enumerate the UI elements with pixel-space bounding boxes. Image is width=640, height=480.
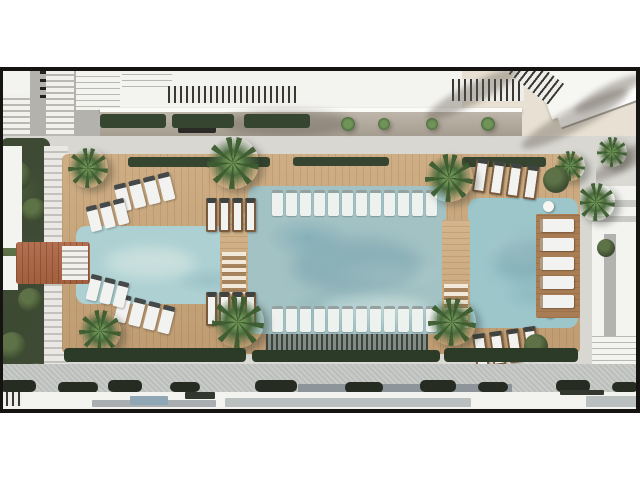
bush-deck-topright bbox=[543, 167, 569, 193]
bottom-roof-gray-3 bbox=[586, 396, 640, 407]
lounger-cabana bbox=[232, 198, 243, 232]
aerial-render-image: Top-down architectural rendering of a re… bbox=[0, 0, 640, 480]
lounger-water bbox=[286, 306, 297, 332]
vent-dots-column bbox=[40, 71, 46, 103]
lounger-cabana bbox=[245, 198, 256, 232]
lounger-water bbox=[328, 190, 339, 216]
lounger-water bbox=[384, 190, 395, 216]
lounger-flat bbox=[540, 238, 574, 251]
lounger-water bbox=[356, 306, 367, 332]
roof-block-lines bbox=[76, 70, 120, 110]
bottom-roof-blue bbox=[130, 396, 168, 405]
lounger-water bbox=[398, 306, 409, 332]
roof-vent-slats-1 bbox=[168, 86, 296, 103]
water-blob-1 bbox=[104, 246, 194, 280]
lounger-water bbox=[370, 190, 381, 216]
lounger-cabana bbox=[506, 162, 524, 197]
lounger-flat bbox=[540, 276, 574, 289]
stairs-topleft bbox=[46, 70, 74, 140]
palm-right-1 bbox=[597, 137, 627, 167]
deck-hedge-2 bbox=[293, 157, 389, 166]
lounger-water bbox=[384, 306, 395, 332]
cabanas-topleft bbox=[206, 198, 256, 232]
palm-topright bbox=[425, 154, 473, 202]
bottom-stairs bbox=[0, 392, 22, 406]
pool-table-1 bbox=[543, 201, 554, 212]
lounger-water bbox=[328, 306, 339, 332]
bottom-roof-gray-2 bbox=[225, 398, 471, 407]
lounger-water bbox=[272, 190, 283, 216]
lounger-water bbox=[398, 190, 409, 216]
palm-bottomleft bbox=[79, 310, 121, 352]
hedge-bottom-2 bbox=[252, 350, 440, 362]
lounger-water bbox=[314, 306, 325, 332]
street-bush-5 bbox=[255, 380, 297, 392]
lounger-flat bbox=[540, 295, 574, 308]
lounger-water bbox=[412, 306, 423, 332]
bush-right bbox=[597, 239, 615, 257]
palm-right-2 bbox=[577, 183, 615, 221]
lounger-water bbox=[342, 306, 353, 332]
walkway-tree-2 bbox=[378, 118, 390, 130]
pier-left-steps bbox=[222, 252, 246, 294]
hedge-bottom-1 bbox=[64, 348, 246, 362]
left-bush-2 bbox=[22, 198, 46, 222]
lounger-cabana bbox=[489, 160, 507, 195]
street-bush-4 bbox=[170, 382, 200, 392]
planter-hedge-1 bbox=[100, 114, 166, 128]
left-building bbox=[0, 146, 22, 248]
street-bush-1 bbox=[0, 380, 36, 392]
street-bush-7 bbox=[420, 380, 456, 392]
lounger-water bbox=[356, 190, 367, 216]
planter-hedge-3 bbox=[244, 114, 310, 128]
loungers-right-column bbox=[540, 219, 574, 308]
street-bush-8 bbox=[478, 382, 508, 392]
walkway-tree-1 bbox=[341, 117, 355, 131]
bottom-roof-dark-1 bbox=[185, 392, 215, 399]
lounger-water bbox=[286, 190, 297, 216]
lounger-water bbox=[314, 190, 325, 216]
lounger-water bbox=[412, 190, 423, 216]
water-blob-2 bbox=[292, 238, 422, 294]
street-bush-3 bbox=[108, 380, 142, 392]
lounger-water bbox=[300, 306, 311, 332]
lounger-flat bbox=[540, 219, 574, 232]
lounger-water bbox=[370, 306, 381, 332]
planter-hedge-2 bbox=[172, 114, 234, 128]
lounger-water bbox=[342, 190, 353, 216]
slat-fence bbox=[266, 334, 428, 350]
letterbox-bottom bbox=[0, 413, 640, 480]
letterbox-top bbox=[0, 0, 640, 67]
roof-block-lines-2 bbox=[122, 68, 172, 90]
palm-topcenter bbox=[207, 137, 259, 189]
walkway-tree-4 bbox=[481, 117, 495, 131]
lounger-water bbox=[272, 306, 283, 332]
lounger-water bbox=[300, 190, 311, 216]
lounger-cabana bbox=[206, 198, 217, 232]
palm-bottomcenter bbox=[212, 296, 264, 348]
inpool-loungers-bottom bbox=[272, 306, 440, 332]
frame-border-top bbox=[0, 67, 640, 71]
hedge-bottom-3 bbox=[444, 348, 578, 362]
street-bush-10 bbox=[612, 382, 638, 392]
bottom-roof-dark-2 bbox=[560, 390, 604, 395]
inpool-loungers-top bbox=[272, 190, 440, 216]
frame-border-left bbox=[0, 67, 3, 413]
bridge-stairs bbox=[62, 246, 88, 280]
lounger-flat bbox=[540, 257, 574, 270]
lounger-cabana bbox=[219, 198, 230, 232]
frame-border-right bbox=[636, 67, 640, 413]
palm-bottomright bbox=[428, 298, 476, 346]
left-bush-4 bbox=[18, 288, 42, 312]
palm-topleft bbox=[68, 148, 108, 188]
